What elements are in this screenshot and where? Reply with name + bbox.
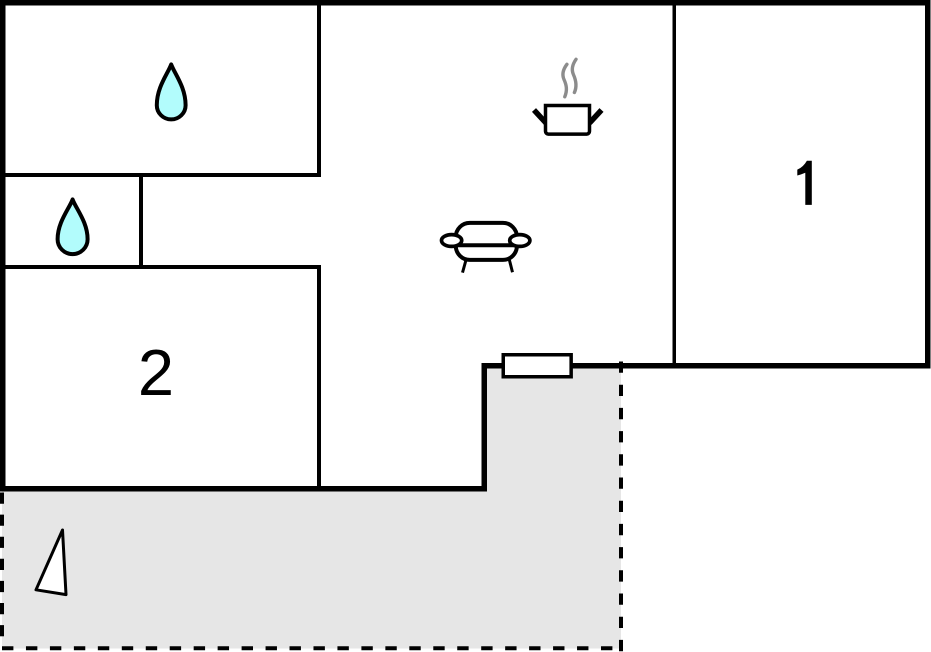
svg-text:2: 2 <box>138 336 174 409</box>
